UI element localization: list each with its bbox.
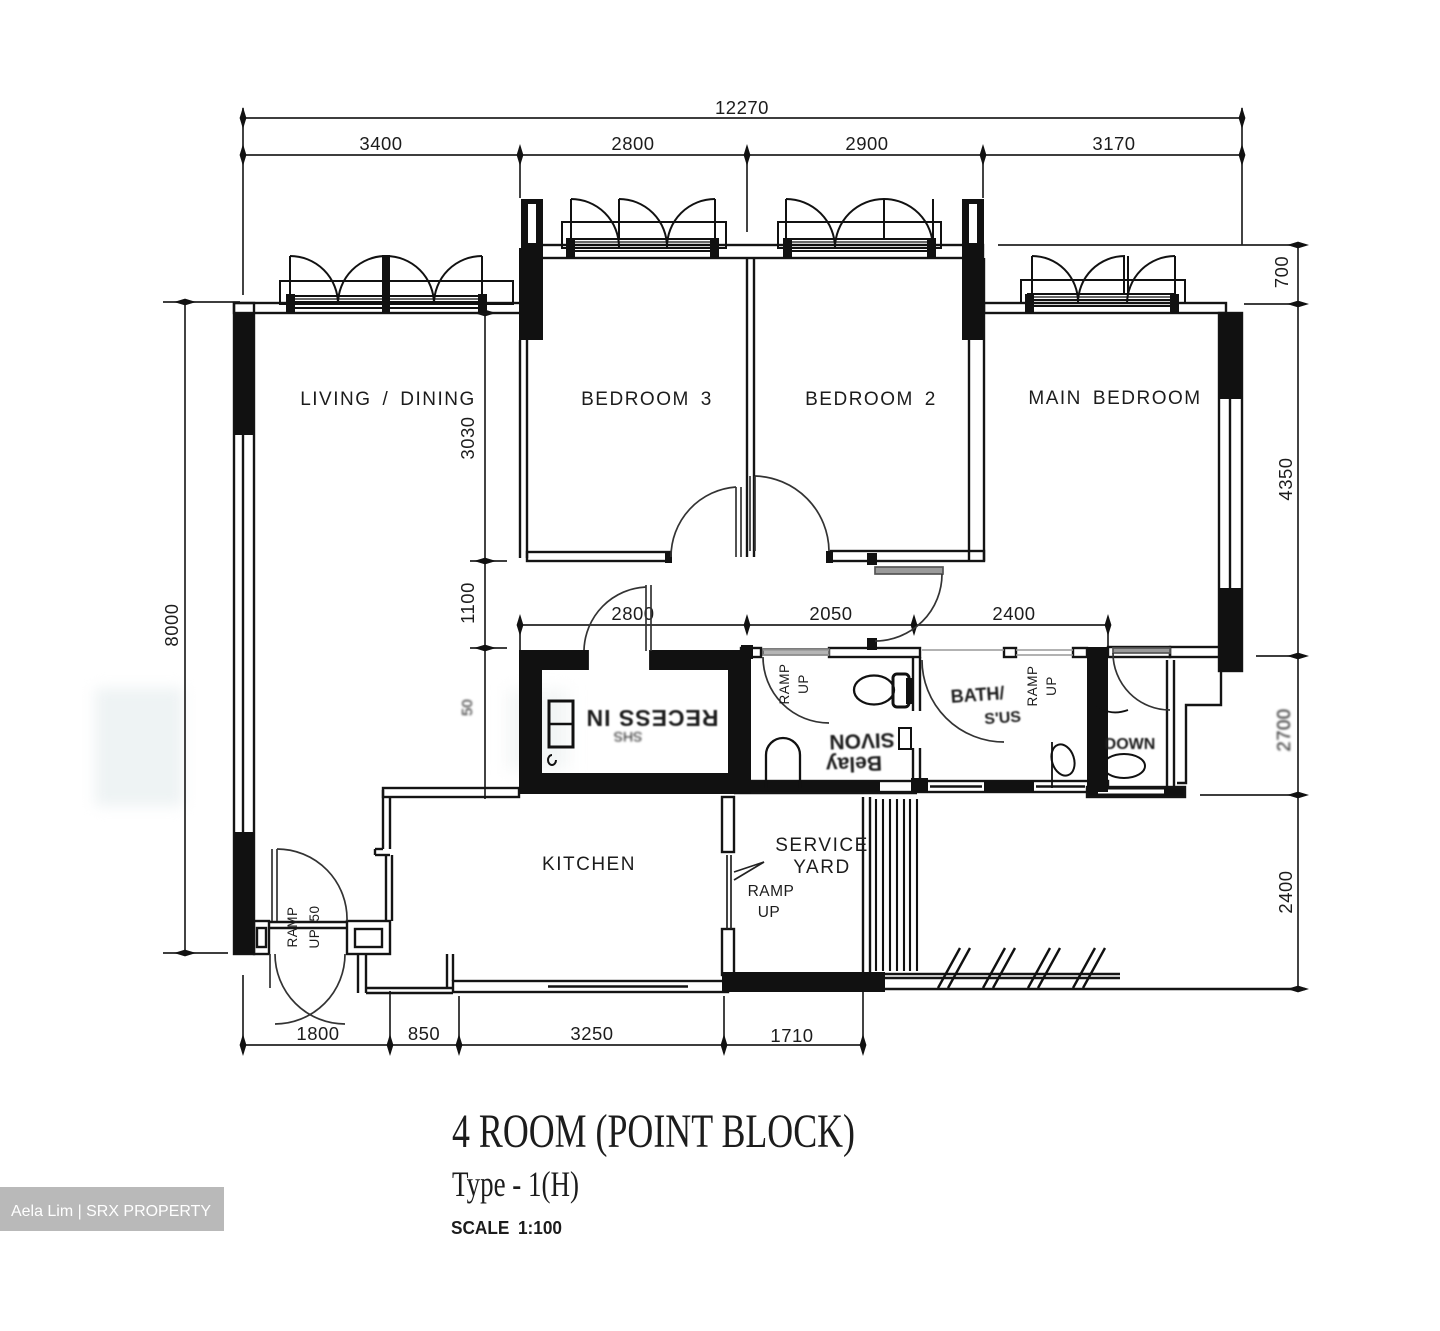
svg-text:Type - 1(H): Type - 1(H) [452,1164,579,1204]
svg-text:RAMP: RAMP [777,663,792,704]
svg-text:SHS: SHS [614,729,643,745]
svg-text:8000: 8000 [161,603,182,646]
svg-text:12270: 12270 [715,97,769,118]
svg-text:700: 700 [1271,256,1292,288]
svg-text:RAMP: RAMP [748,883,795,900]
svg-text:3030: 3030 [457,416,478,459]
svg-text:RECESS IN: RECESS IN [586,705,719,731]
svg-text:2050: 2050 [809,603,852,624]
svg-text:SIVON: SIVON [829,728,895,753]
svg-text:KITCHEN: KITCHEN [542,854,636,875]
svg-text:BEDROOM 3: BEDROOM 3 [581,389,713,410]
svg-text:2700: 2700 [1273,708,1294,751]
svg-text:Belay: Belay [825,751,882,776]
svg-text:DOWN: DOWN [1105,736,1156,753]
svg-text:S'US: S'US [984,709,1022,729]
svg-text:YARD: YARD [793,857,850,878]
svg-text:4 ROOM (POINT BLOCK): 4 ROOM (POINT BLOCK) [452,1105,855,1158]
svg-text:UP: UP [796,674,811,694]
svg-text:2900: 2900 [845,133,888,154]
svg-text:UP 50: UP 50 [307,905,322,948]
svg-text:UP: UP [758,904,781,921]
svg-text:LIVING / DINING: LIVING / DINING [300,389,476,410]
svg-text:SERVICE: SERVICE [775,835,869,856]
svg-text:RAMP: RAMP [1025,665,1040,706]
svg-text:3250: 3250 [570,1023,613,1044]
svg-text:2800: 2800 [611,603,654,624]
svg-text:3400: 3400 [359,133,402,154]
svg-text:850: 850 [408,1023,440,1044]
svg-text:3170: 3170 [1092,133,1135,154]
svg-text:BEDROOM 2: BEDROOM 2 [805,389,937,410]
svg-text:RAMP: RAMP [285,906,300,947]
svg-text:1100: 1100 [457,582,478,624]
svg-text:Aela Lim | SRX PROPERTY: Aela Lim | SRX PROPERTY [11,1203,211,1220]
svg-text:2400: 2400 [992,603,1035,624]
svg-text:50: 50 [459,699,476,716]
svg-text:4350: 4350 [1275,457,1296,500]
svg-text:1710: 1710 [770,1025,813,1046]
svg-text:1800: 1800 [296,1023,339,1044]
svg-text:BATH/: BATH/ [950,683,1005,707]
svg-text:UP: UP [1044,676,1059,696]
svg-text:2400: 2400 [1275,870,1296,913]
svg-text:MAIN BEDROOM: MAIN BEDROOM [1028,388,1201,409]
svg-text:2800: 2800 [611,133,654,154]
svg-text:SCALE 1:100: SCALE 1:100 [451,1218,562,1238]
